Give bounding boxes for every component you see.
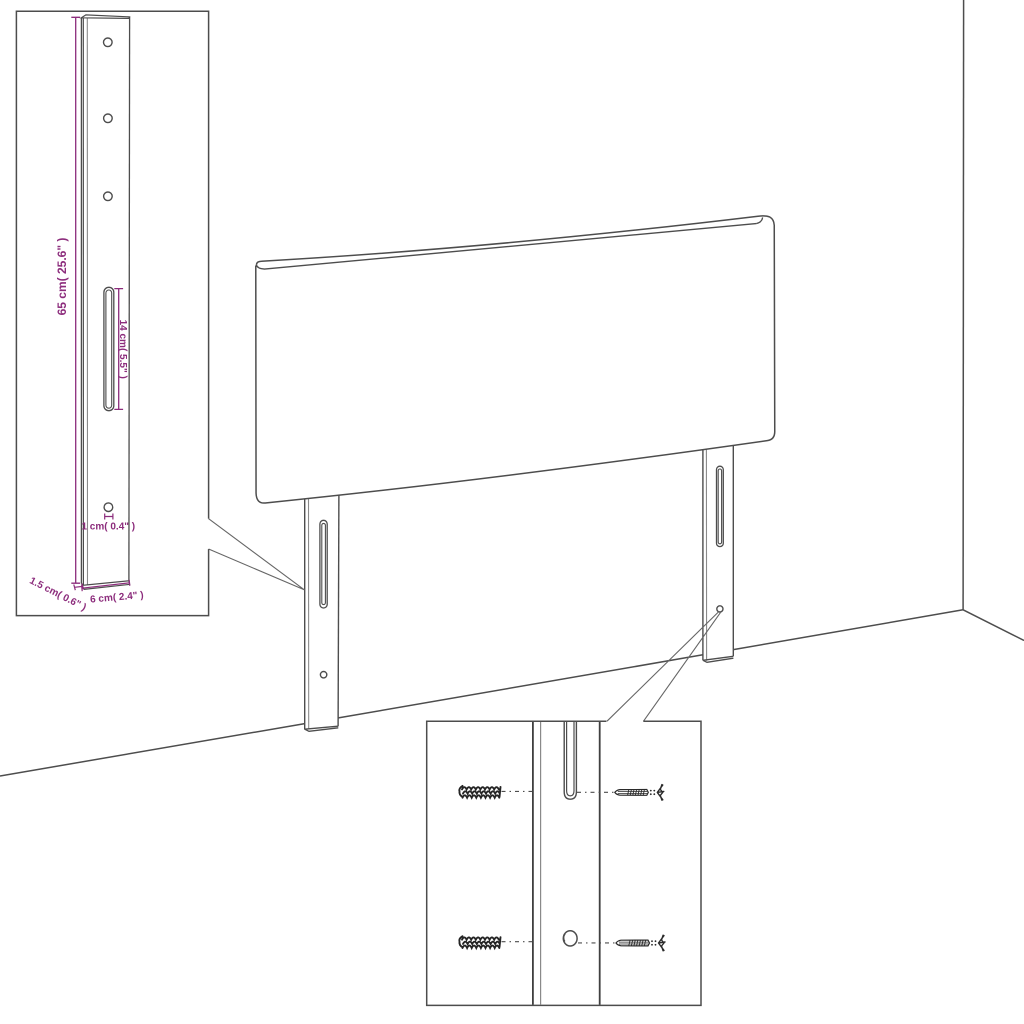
svg-text:14 cm( 5.5" ): 14 cm( 5.5" ) — [117, 320, 128, 379]
svg-text:65 cm( 25.6" ): 65 cm( 25.6" ) — [55, 238, 69, 316]
svg-text:1 cm( 0.4" ): 1 cm( 0.4" ) — [81, 521, 135, 532]
